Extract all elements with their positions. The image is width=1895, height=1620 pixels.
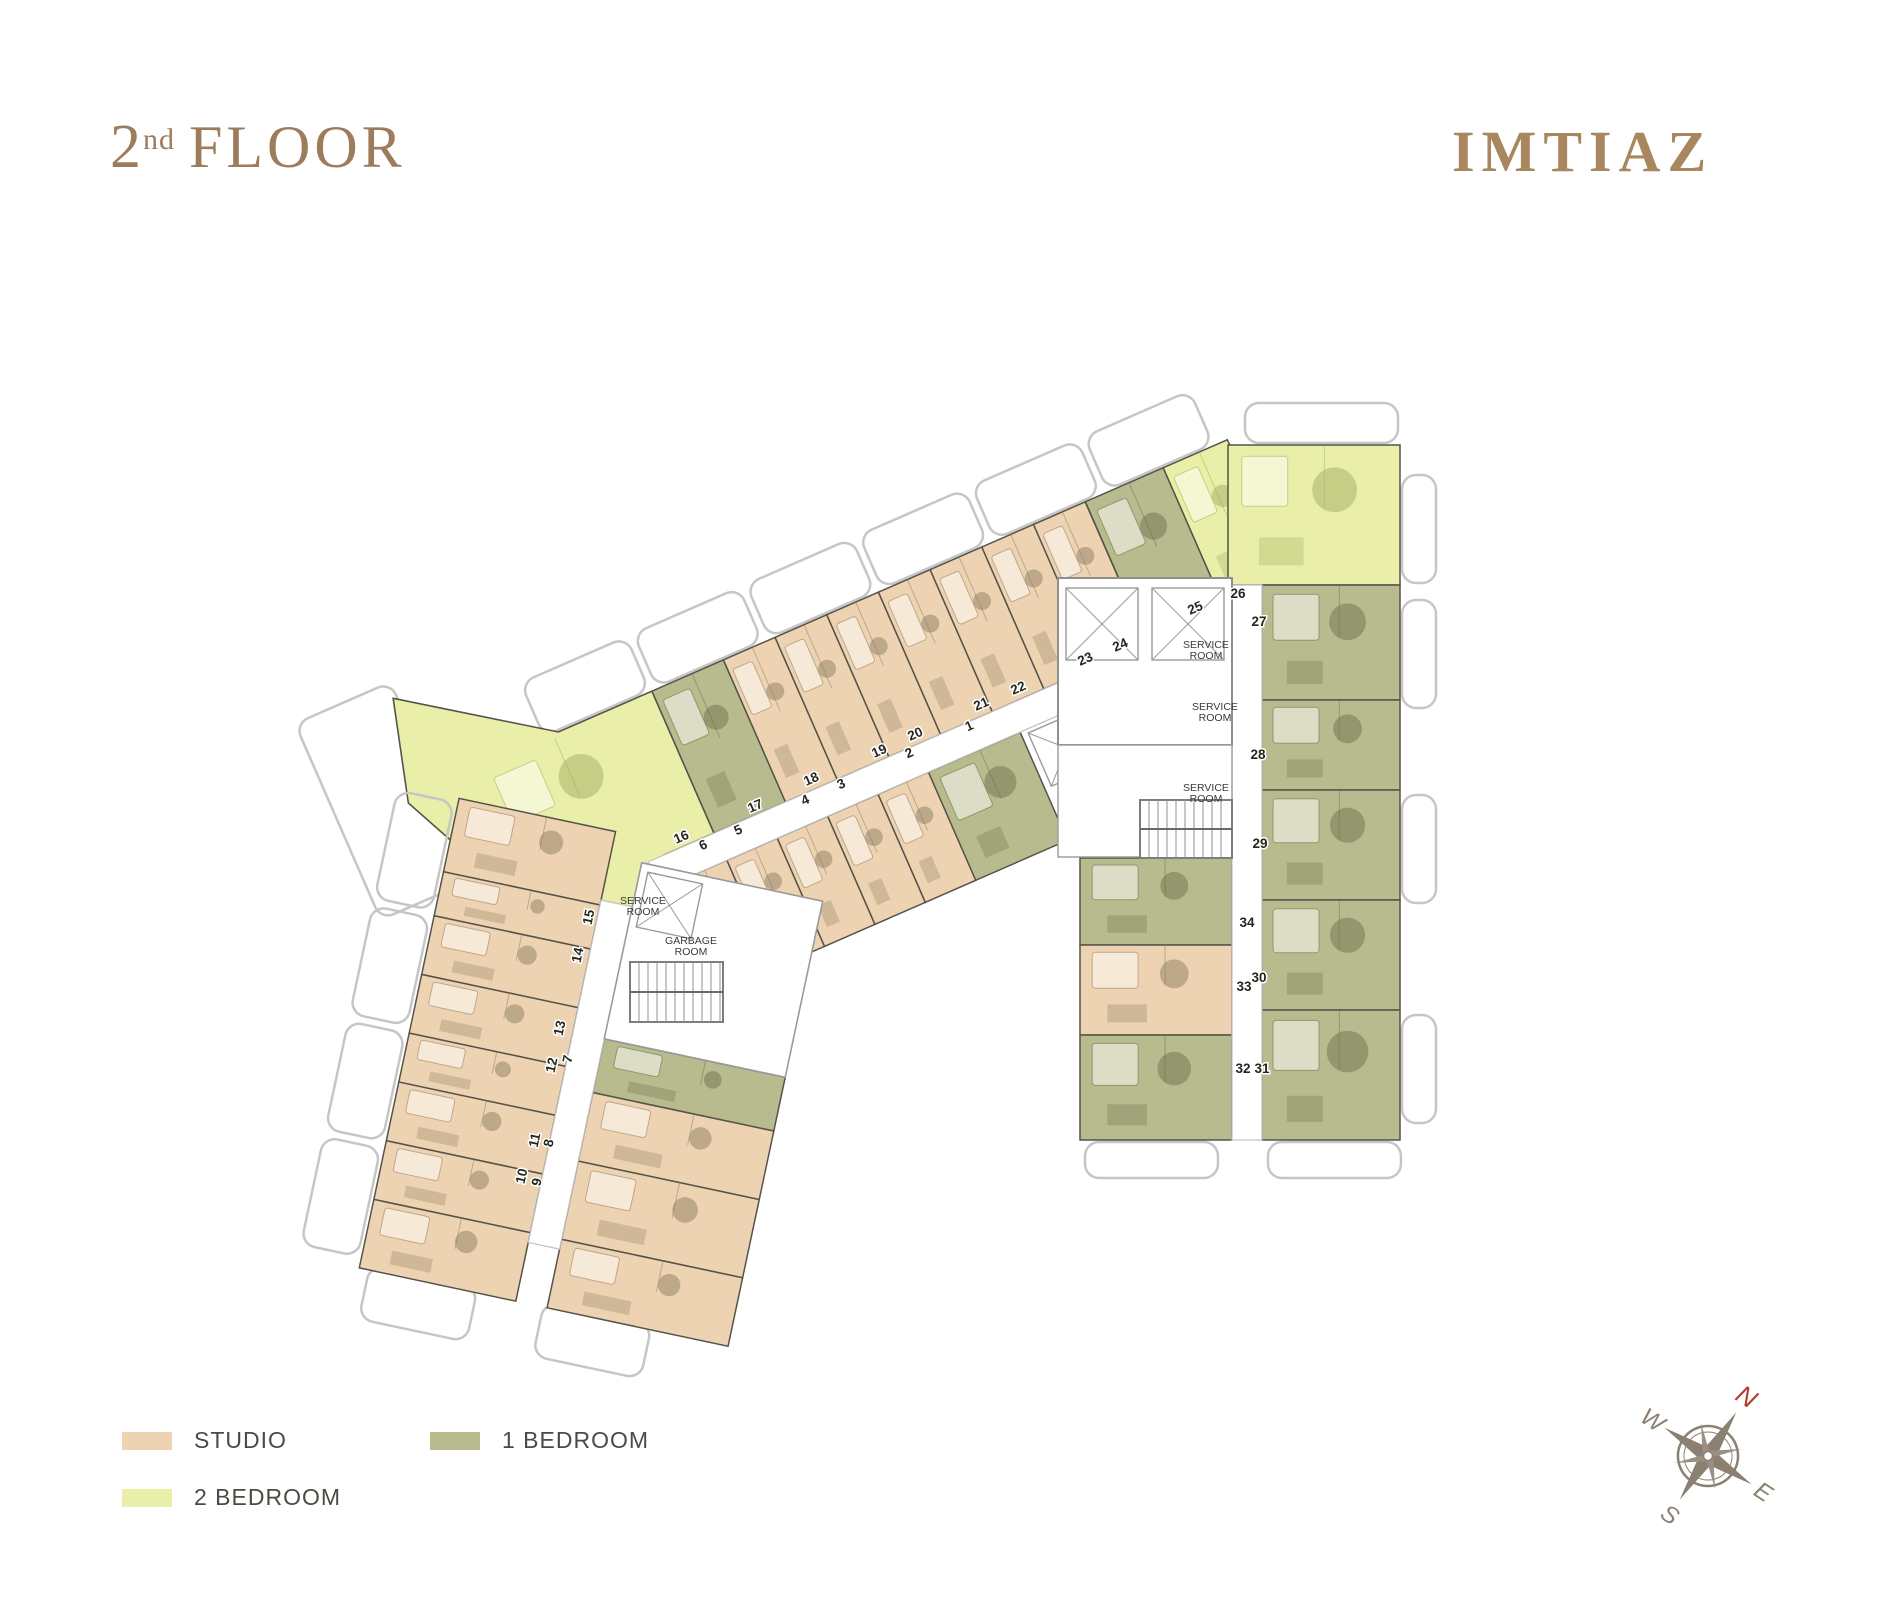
table-icon bbox=[1287, 759, 1323, 777]
balcony-outline bbox=[1402, 475, 1436, 583]
bed-icon bbox=[1273, 909, 1319, 953]
unit-number-label: 12 bbox=[543, 1056, 561, 1074]
floor-plan-svg: 1234567891011121314151617181920212223242… bbox=[0, 0, 1895, 1620]
table-icon bbox=[1287, 661, 1323, 684]
bed-icon bbox=[1273, 594, 1319, 640]
rug-icon bbox=[1160, 959, 1189, 988]
bed-icon bbox=[1092, 865, 1138, 900]
legend-swatch-1-bedroom bbox=[430, 1432, 480, 1450]
balcony-outline bbox=[1402, 795, 1436, 903]
unit-number-label: 34 bbox=[1239, 915, 1255, 930]
room-label: SERVICEROOM bbox=[1183, 782, 1229, 805]
legend-label-1-bedroom: 1 BEDROOM bbox=[502, 1427, 649, 1454]
compass-west-label: W bbox=[1636, 1403, 1672, 1439]
bed-icon bbox=[1092, 952, 1138, 988]
balcony-outline bbox=[1268, 1142, 1401, 1178]
unit-number-label: 29 bbox=[1252, 836, 1267, 851]
bed-icon bbox=[1273, 707, 1319, 743]
compass-east-label: E bbox=[1749, 1477, 1778, 1509]
bed-icon bbox=[1242, 456, 1288, 506]
floor-plan: 1234567891011121314151617181920212223242… bbox=[0, 0, 1895, 1620]
table-icon bbox=[1107, 1104, 1147, 1125]
unit-number-label: 33 bbox=[1236, 979, 1252, 994]
rug-icon bbox=[1157, 1052, 1191, 1086]
legend-label-studio: STUDIO bbox=[194, 1427, 287, 1454]
compass-svg: N E S W bbox=[1620, 1378, 1860, 1588]
table-icon bbox=[1287, 973, 1323, 995]
legend-label-2-bedroom: 2 BEDROOM bbox=[194, 1484, 341, 1511]
unit-number-label: 30 bbox=[1251, 970, 1266, 985]
page: 2ndFLOOR IMTIAZ 123456789101112131415161… bbox=[0, 0, 1895, 1620]
legend-swatch-studio bbox=[122, 1432, 172, 1450]
table-icon bbox=[1107, 1004, 1147, 1022]
balcony-outline bbox=[1402, 600, 1436, 708]
balcony-outline bbox=[1085, 1142, 1218, 1178]
rug-icon bbox=[1327, 1031, 1369, 1073]
rug-icon bbox=[1333, 714, 1362, 743]
table-icon bbox=[1287, 863, 1323, 885]
unit-number-label: 26 bbox=[1230, 586, 1246, 601]
rug-icon bbox=[1329, 603, 1366, 640]
room-label-line: ROOM bbox=[627, 906, 660, 918]
room-label-line: ROOM bbox=[675, 946, 708, 958]
legend-swatch-2-bedroom bbox=[122, 1489, 172, 1507]
room-label: SERVICEROOM bbox=[620, 895, 666, 918]
rug-icon bbox=[1312, 467, 1357, 512]
table-icon bbox=[1107, 915, 1147, 932]
table-icon bbox=[1287, 1096, 1323, 1122]
bed-icon bbox=[1273, 799, 1319, 843]
rug-icon bbox=[1330, 918, 1365, 953]
balcony-outline bbox=[1245, 403, 1398, 443]
bed-icon bbox=[1273, 1020, 1319, 1070]
legend-item-studio: STUDIO bbox=[122, 1427, 287, 1454]
unit-number-label: 10 bbox=[513, 1167, 531, 1185]
room-label-line: ROOM bbox=[1190, 793, 1223, 805]
compass-south-label: S bbox=[1656, 1499, 1684, 1530]
unit-number-label: 28 bbox=[1250, 747, 1266, 762]
table-icon bbox=[1259, 537, 1304, 565]
balcony-outline bbox=[1402, 1015, 1436, 1123]
bed-icon bbox=[1092, 1043, 1138, 1085]
room-label-line: ROOM bbox=[1199, 712, 1232, 724]
legend-item-2-bedroom: 2 BEDROOM bbox=[122, 1484, 341, 1511]
room-label-line: ROOM bbox=[1190, 650, 1223, 662]
compass-north-label: N bbox=[1731, 1379, 1763, 1415]
unit-number-label: 32 bbox=[1235, 1061, 1250, 1076]
room-label: SERVICEROOM bbox=[1183, 639, 1229, 662]
corridor bbox=[1232, 585, 1262, 1140]
rug-icon bbox=[1330, 808, 1365, 843]
unit-number-label: 31 bbox=[1254, 1061, 1270, 1076]
compass-rose: N E S W bbox=[1620, 1378, 1860, 1588]
legend-item-1-bedroom: 1 BEDROOM bbox=[430, 1427, 649, 1454]
unit-number-label: 27 bbox=[1251, 614, 1266, 629]
rug-icon bbox=[1160, 872, 1188, 900]
room-label: SERVICEROOM bbox=[1192, 701, 1238, 724]
